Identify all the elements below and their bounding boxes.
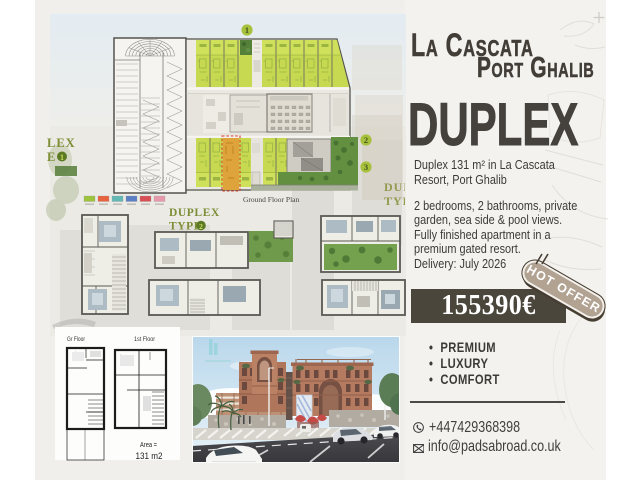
svg-text:Area =: Area = <box>140 440 157 449</box>
svg-text:LEX: LEX <box>47 136 76 150</box>
svg-text:Ground Floor Plan: Ground Floor Plan <box>243 195 300 204</box>
svg-text:E: E <box>47 150 56 164</box>
svg-text:131 m2: 131 m2 <box>136 451 163 462</box>
svg-text:1st Floor: 1st Floor <box>134 336 156 343</box>
svg-text:1: 1 <box>60 153 64 162</box>
svg-text:2: 2 <box>199 222 203 231</box>
svg-text:2: 2 <box>364 135 368 145</box>
svg-text:DUPLEX: DUPLEX <box>169 207 220 219</box>
svg-text:3: 3 <box>364 162 368 172</box>
svg-text:1: 1 <box>245 25 249 35</box>
svg-text:Gr Floor: Gr Floor <box>67 336 86 343</box>
